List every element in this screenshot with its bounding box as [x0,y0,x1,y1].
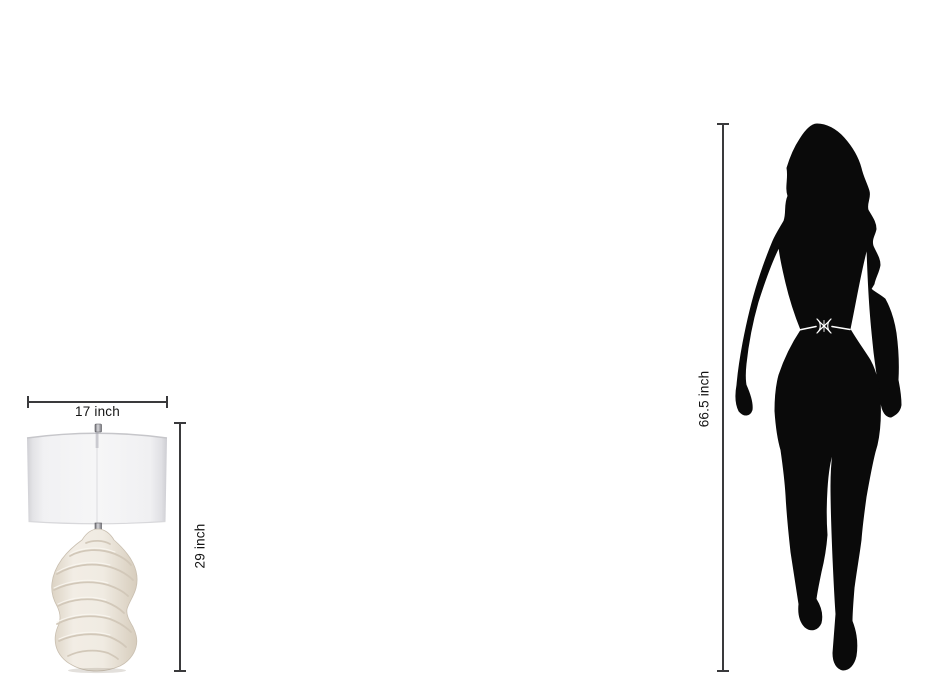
lamp-width-label: 17 inch [27,404,168,419]
woman-silhouette-shape [736,124,901,670]
woman-silhouette [725,110,910,680]
lamp-height-label: 29 inch [193,524,208,569]
dimension-tick [174,422,186,424]
person-height-label: 66.5 inch [697,371,712,428]
person-height-dimension-line [722,123,724,672]
lamp-finial [95,424,102,432]
lamp-base-shadow [68,668,126,673]
lamp-width-dimension-line [27,401,168,403]
dimension-tick [174,670,186,672]
lamp-height-dimension-line [179,422,181,672]
table-lamp-illustration [20,420,176,676]
product-dimension-diagram: 17 inch 29 inch 66.5 inch [0,0,933,700]
